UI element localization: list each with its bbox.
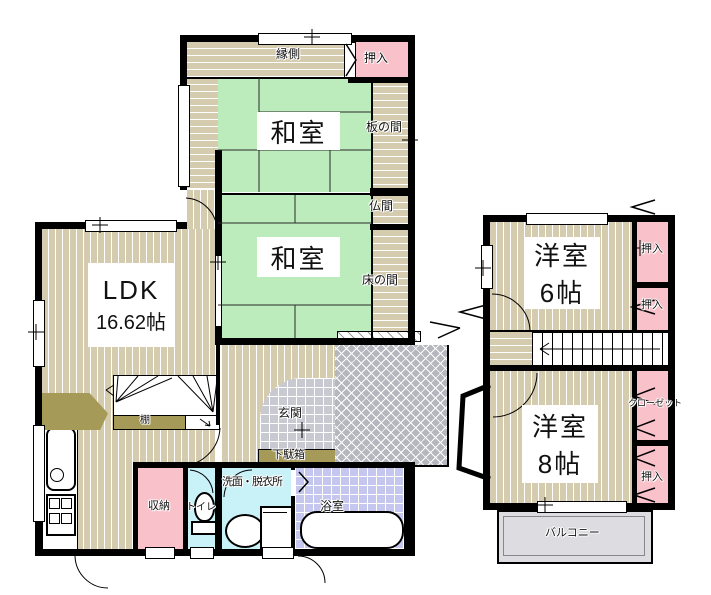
partition	[490, 330, 668, 332]
wall	[632, 440, 675, 446]
bath-door-opening	[291, 470, 295, 496]
ldk-floor-nook	[187, 190, 215, 229]
stair-landing-box	[185, 415, 220, 430]
engawa-label: 縁側	[276, 48, 300, 61]
window	[85, 220, 177, 232]
washitsu1-label-box: 和室	[257, 112, 340, 150]
room6-label-box: 洋室 6帖	[524, 237, 600, 309]
window	[178, 85, 190, 187]
closet-label: クローゼット	[628, 399, 682, 408]
wall	[215, 338, 415, 345]
window	[258, 33, 352, 45]
room8-size-label: 8帖	[538, 444, 582, 481]
oshiire-c-label: 押入	[641, 472, 663, 484]
oshiire-top-folding-door	[344, 42, 356, 82]
genkan-label: 玄関	[278, 407, 302, 420]
wall	[404, 462, 415, 552]
wall	[215, 462, 222, 549]
burner-icon	[61, 513, 72, 524]
oshiire-top-label: 押入	[364, 52, 388, 65]
stair-shelf	[113, 415, 187, 430]
bathtub-icon	[300, 511, 404, 549]
ldk-size-label: 16.62帖	[96, 306, 166, 335]
washitsu-closet-mark	[430, 322, 460, 338]
shuno-label: 収納	[148, 501, 170, 513]
stairs-2f	[532, 332, 670, 367]
wall	[668, 215, 675, 510]
oshiire-b-label: 押入	[641, 300, 663, 312]
window	[537, 501, 627, 513]
itanoma-floor	[372, 80, 408, 190]
window	[145, 547, 175, 559]
washitsu2-label-box: 和室	[257, 237, 340, 277]
partition	[187, 77, 408, 79]
room6-size-label: 6帖	[540, 273, 584, 310]
room8-label: 洋室	[532, 407, 588, 444]
getabako-label: 下駄箱	[272, 450, 305, 462]
stair-landing-2f	[490, 332, 532, 365]
window	[33, 300, 45, 367]
washitsu-opening	[216, 255, 221, 327]
wall	[632, 282, 675, 288]
toilet-tank-icon	[191, 521, 218, 535]
window	[526, 213, 608, 225]
senmen-label: 洗面・脱衣所	[222, 477, 282, 489]
butsuma-label: 仏間	[369, 200, 393, 213]
floor-plan: 和室 和室 LDK 16.62帖 洋室 6帖 洋室 8帖 縁側 押入 板の間 仏…	[0, 0, 711, 595]
itanoma-label: 板の間	[366, 121, 402, 134]
balcony-label: バルコニー	[545, 528, 600, 540]
washbasin-icon	[225, 514, 265, 548]
wall	[35, 549, 415, 556]
engawa-floor	[187, 42, 347, 78]
oshiire-a-label: 押入	[641, 244, 663, 256]
wall	[370, 224, 415, 230]
wall	[632, 368, 637, 503]
wall	[632, 222, 637, 330]
washitsu2-label: 和室	[270, 239, 326, 276]
sink-drain-icon	[50, 468, 64, 482]
room8-label-box: 洋室 8帖	[522, 405, 598, 483]
room6-label: 洋室	[534, 236, 590, 273]
wall	[133, 462, 138, 549]
window	[33, 425, 45, 522]
stairs-1f	[113, 375, 220, 417]
window	[190, 547, 214, 559]
wall	[133, 462, 415, 468]
wall	[483, 365, 675, 371]
ldk-label: LDK	[103, 275, 160, 306]
partition	[218, 193, 408, 195]
washitsu1-label: 和室	[270, 113, 326, 150]
partition	[216, 345, 220, 425]
tana-label: 棚	[140, 416, 150, 427]
washing-machine-line	[263, 512, 287, 513]
window	[481, 245, 493, 289]
entrance-porch	[335, 345, 449, 467]
burner-icon	[49, 513, 60, 524]
window	[262, 547, 294, 559]
burner-icon	[61, 498, 72, 509]
bath-label: 浴室	[320, 500, 344, 513]
tokonoma-label: 床の間	[362, 274, 398, 287]
toilet-label: トイレ	[186, 503, 216, 514]
burner-icon	[49, 498, 60, 509]
ldk-label-box: LDK 16.62帖	[88, 263, 174, 347]
kitchen-sink-icon	[46, 427, 76, 491]
